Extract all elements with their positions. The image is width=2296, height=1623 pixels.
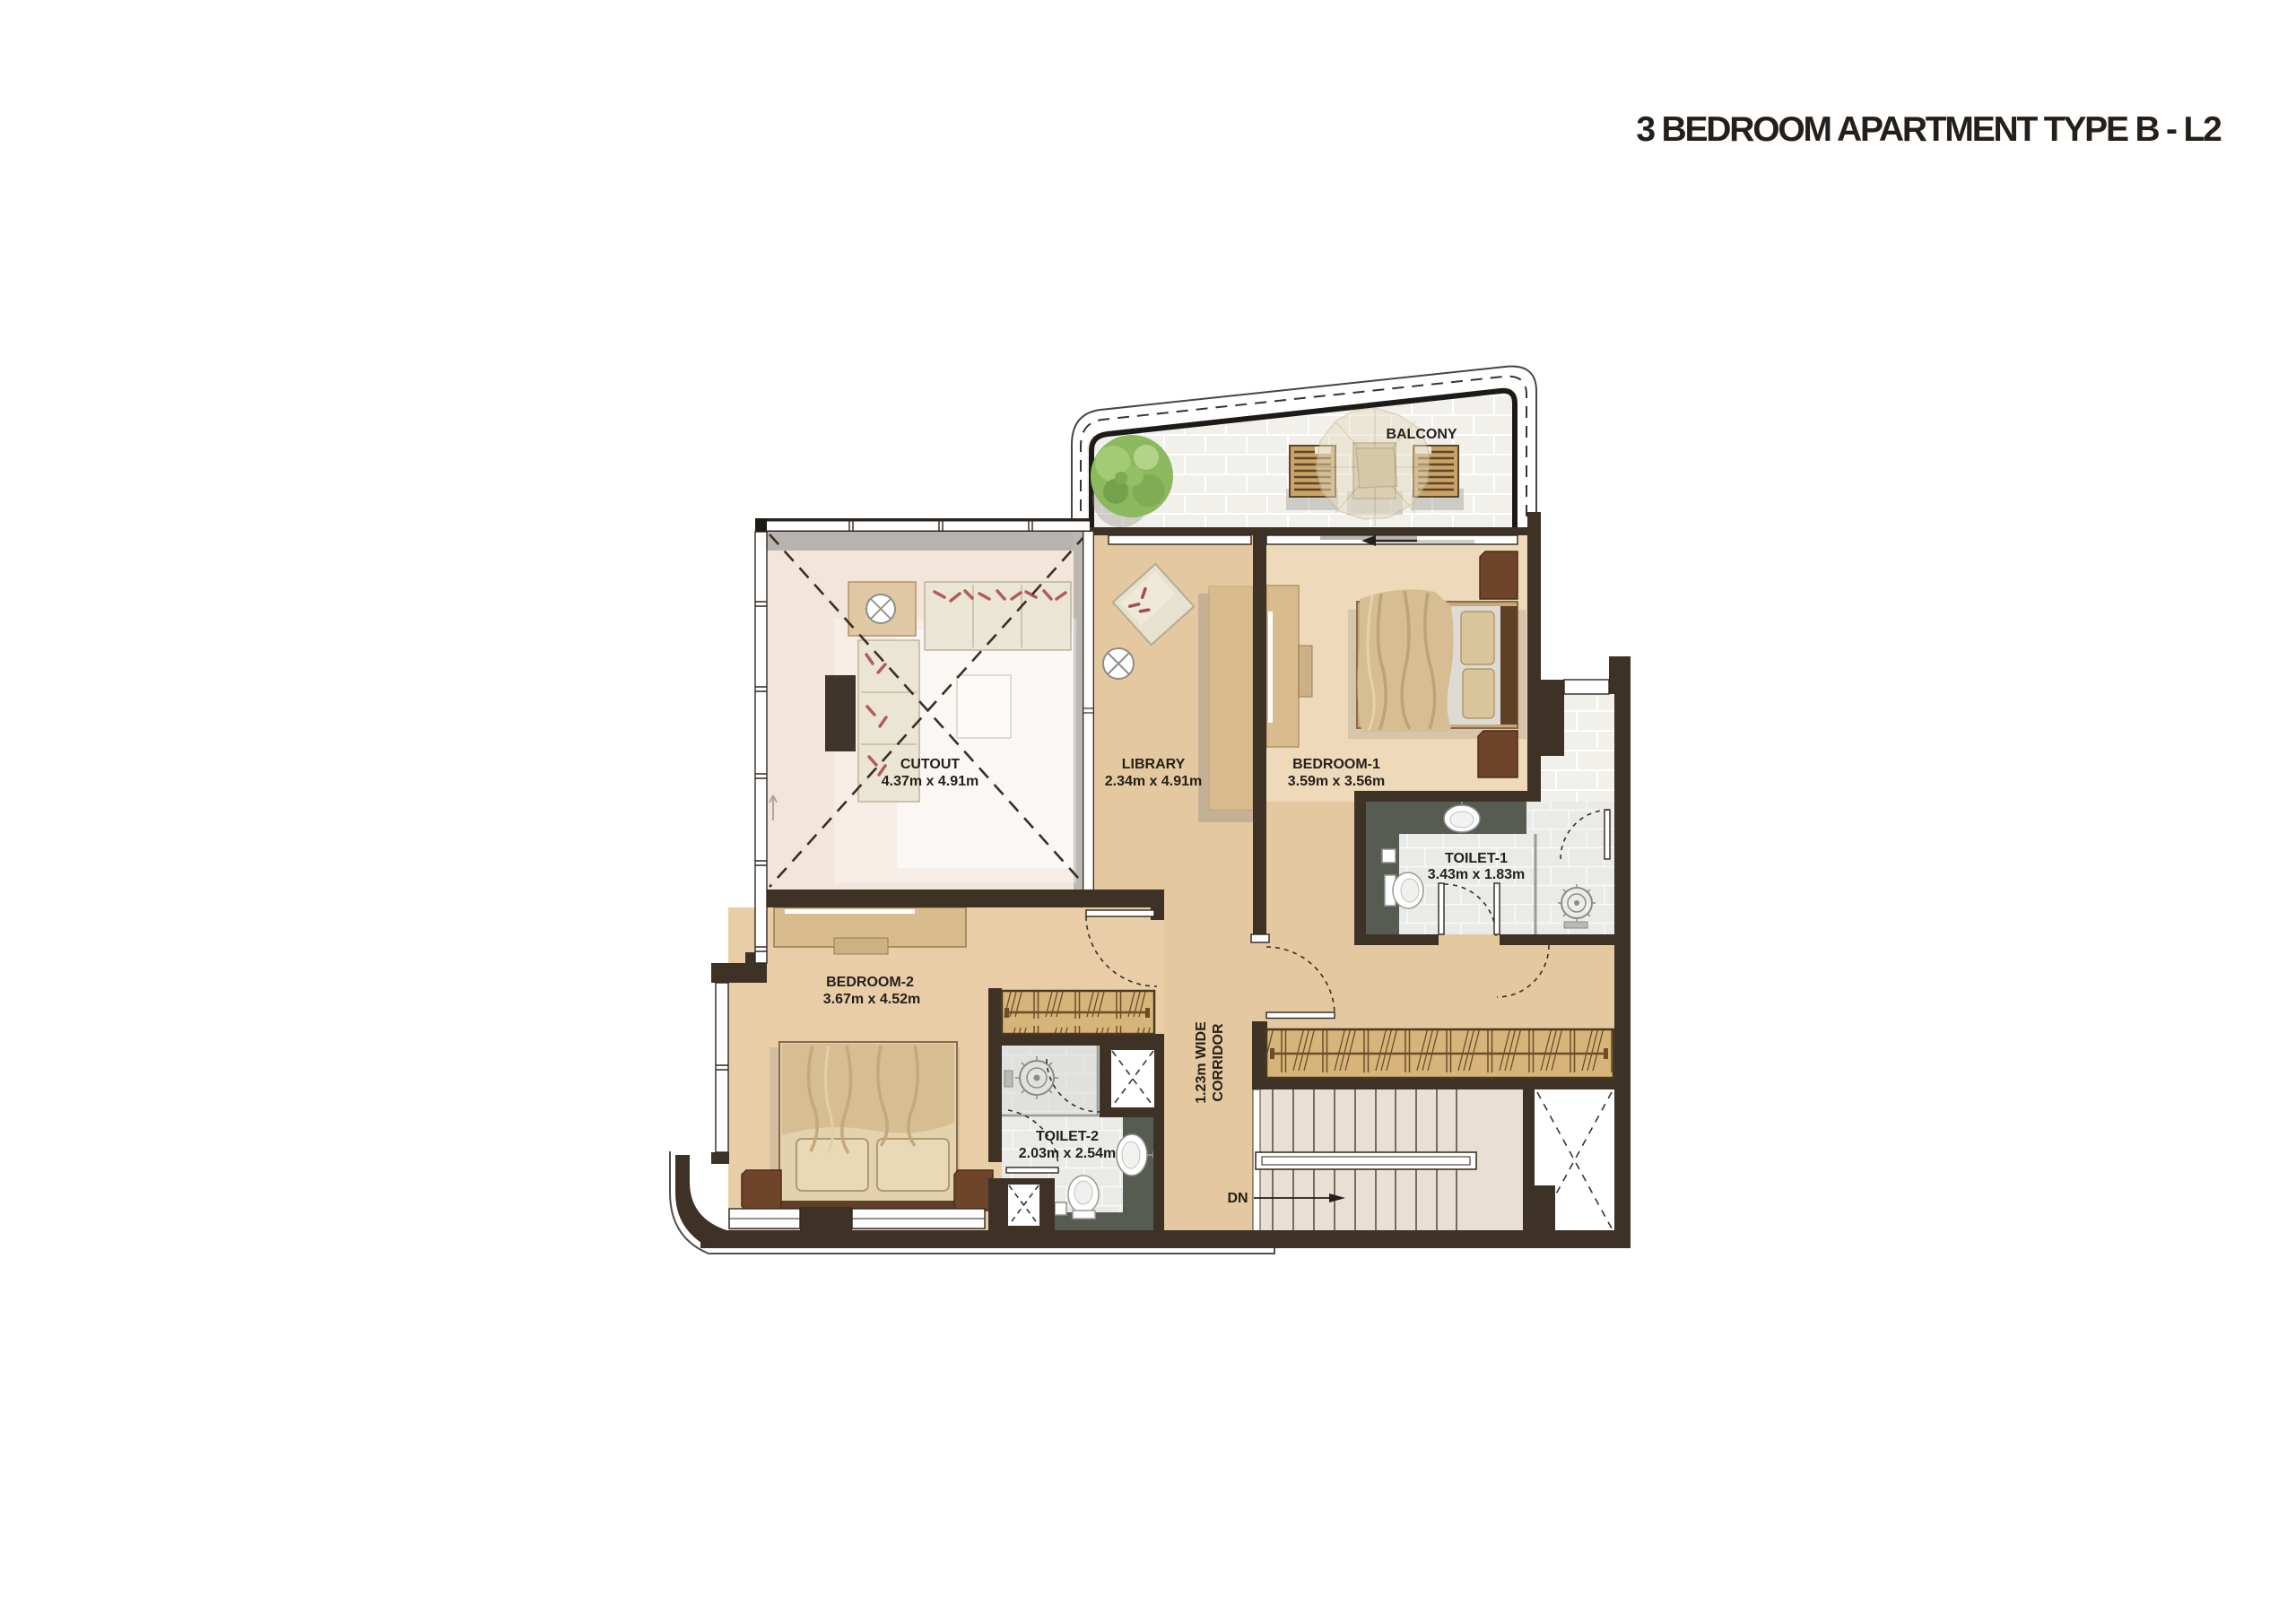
- svg-text:3 BEDROOM APARTMENT TYPE B - L: 3 BEDROOM APARTMENT TYPE B - L2: [1636, 110, 2222, 149]
- svg-text:2.34m x 4.91m: 2.34m x 4.91m: [1105, 774, 1203, 789]
- svg-text:DN: DN: [1227, 1191, 1248, 1206]
- svg-text:4.37m x 4.91m: 4.37m x 4.91m: [882, 774, 979, 789]
- svg-text:BEDROOM-1: BEDROOM-1: [1292, 757, 1380, 772]
- svg-text:LIBRARY: LIBRARY: [1122, 757, 1186, 772]
- svg-text:3.59m x 3.56m: 3.59m x 3.56m: [1288, 774, 1386, 789]
- svg-text:TOILET-2: TOILET-2: [1036, 1129, 1099, 1144]
- svg-text:CUTOUT: CUTOUT: [900, 757, 961, 772]
- svg-text:3.67m x 4.52m: 3.67m x 4.52m: [823, 992, 921, 1007]
- svg-text:2.03m x 2.54m: 2.03m x 2.54m: [1019, 1146, 1117, 1161]
- svg-text:BEDROOM-2: BEDROOM-2: [826, 975, 914, 990]
- svg-text:TOILET-1: TOILET-1: [1445, 851, 1508, 866]
- svg-text:BALCONY: BALCONY: [1386, 427, 1457, 442]
- svg-text:3.43m x 1.83m: 3.43m x 1.83m: [1428, 867, 1526, 882]
